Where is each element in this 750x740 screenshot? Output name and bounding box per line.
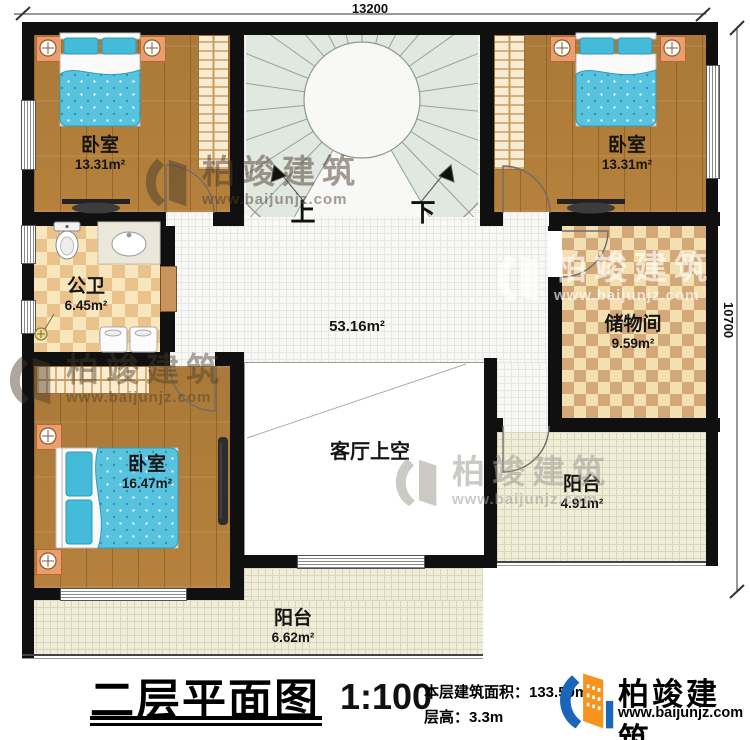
floor-height-text: 层高：3.3m [424,706,503,727]
room-label-storage: 储物间 9.59m² [604,314,661,351]
void-edge-line [247,364,466,438]
toilet-icon [54,222,80,259]
room-label-bedroom-top-left: 卧室 13.31m² [75,135,125,172]
bed [60,33,140,126]
bed [576,33,656,126]
brand-website: www.baijunjz.com [618,705,743,721]
room-label-hall-area: 53.16m² [329,318,385,335]
stair-up-label: 上 [290,193,315,229]
room-label-bathroom: 公卫 6.45m² [65,276,108,313]
floor-plan-page: 卧室 13.31m² 卧室 13.31m² 公卫 6.45m² 53.16m² … [0,0,750,740]
room-label-bedroom-top-right: 卧室 13.31m² [602,135,652,172]
room-label-balcony-right: 阳台 4.91m² [561,474,604,511]
title-underline [90,716,322,720]
room-label-bedroom-bottom-left: 卧室 16.47m² [122,454,172,491]
room-label-living-void: 客厅上空 [330,441,410,464]
dimension-right: 10700 [721,302,736,338]
stair-down-label: 下 [410,193,435,229]
spiral-staircase [193,0,531,273]
sink-icon [98,222,160,264]
title-underline [90,723,322,726]
plan-linework [0,0,750,740]
dimension-top: 13200 [340,1,400,16]
washer-icon [100,327,157,352]
room-label-balcony-bottom: 阳台 6.62m² [272,608,315,645]
plan-scale: 1:100 [340,676,432,718]
floor-drain-icon [35,314,54,340]
brand-logo-icon [552,666,616,734]
